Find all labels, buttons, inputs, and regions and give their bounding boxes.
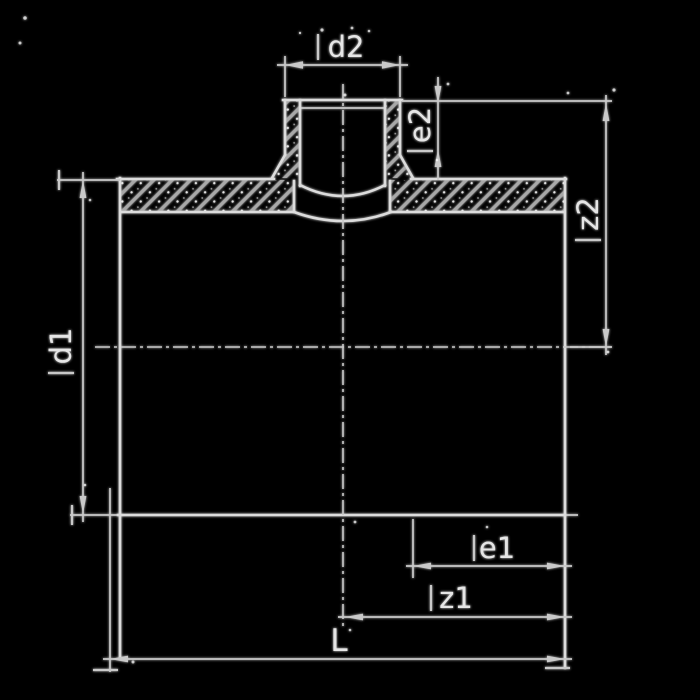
- speckle-dot: [351, 27, 354, 30]
- hatch-branch-wall-left: [286, 101, 299, 155]
- speckle-dot: [607, 351, 610, 354]
- speckle-dot: [299, 32, 301, 34]
- speckle-dot: [19, 42, 22, 45]
- e1-arrow-right: [547, 563, 565, 570]
- speckle-dot: [567, 92, 570, 95]
- e1-arrow-left: [413, 563, 431, 570]
- d2-arrow-left: [285, 61, 303, 69]
- hatch-band-left: [120, 180, 294, 211]
- dim-label-L: L: [330, 623, 348, 659]
- dimension-e1: e1: [406, 519, 572, 578]
- hatch-flare-left: [273, 154, 299, 178]
- dimension-z1: z1: [338, 581, 572, 620]
- centerlines: [95, 84, 612, 630]
- dimension-e2: e2: [402, 77, 612, 180]
- drawing-page: d2 e2 z2: [0, 0, 700, 700]
- dim-label-e1: e1: [479, 531, 515, 565]
- speckle-dot: [436, 159, 439, 162]
- d2-arrow-right: [382, 61, 400, 69]
- speckle-dot: [368, 30, 371, 33]
- fitting-dimension-drawing: d2 e2 z2: [0, 0, 700, 700]
- hatch-band-right: [390, 180, 565, 211]
- speckle-dot: [344, 94, 347, 97]
- hatch-branch-wall-right: [386, 101, 399, 155]
- z1-arrow-left: [345, 614, 363, 621]
- dim-label-d1: d1: [44, 328, 78, 365]
- main-body-outline: [70, 178, 578, 668]
- dim-label-z1: z1: [439, 581, 473, 615]
- dim-label-e2: e2: [403, 107, 437, 143]
- speckle-dot: [447, 83, 450, 86]
- speckle-dot: [320, 28, 323, 31]
- z1-arrow-right: [547, 614, 565, 621]
- speckle-dot: [84, 484, 87, 487]
- speckle-dot: [349, 629, 352, 632]
- speckle-dot: [23, 16, 27, 20]
- dim-label-d2: d2: [328, 30, 365, 64]
- e2-arrow-bottom: [435, 149, 442, 167]
- dimension-z2: z2: [570, 95, 612, 355]
- z2-arrow-top: [603, 103, 610, 121]
- dim-label-z2: z2: [571, 197, 605, 231]
- d1-arrow-top: [80, 180, 87, 198]
- speckle-dot: [486, 526, 489, 529]
- speckle-dot: [89, 199, 92, 202]
- z2-arrow-bottom: [603, 329, 610, 347]
- speckle-dot: [354, 521, 357, 524]
- speckle-dot: [132, 661, 135, 664]
- speckle-dot: [612, 88, 615, 91]
- L-arrow-right: [547, 656, 565, 663]
- d1-arrow-bottom: [80, 496, 87, 514]
- hatch-flare-right: [386, 154, 413, 178]
